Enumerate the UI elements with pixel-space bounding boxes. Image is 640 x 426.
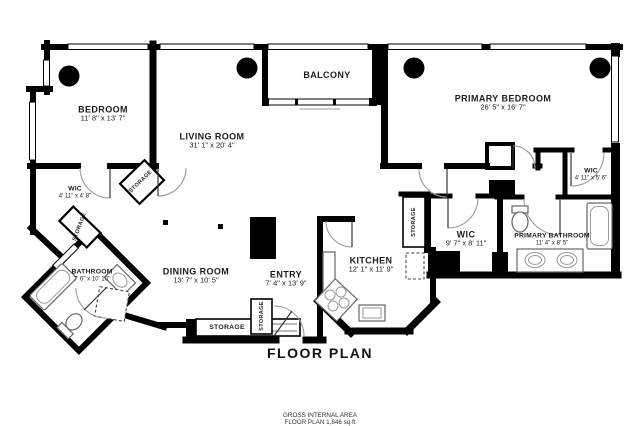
column-2 [237, 58, 258, 79]
balcony-rail-cap-left [263, 98, 269, 106]
room-label-dining-room: DINING ROOM 13' 7" x 10' 5" [163, 267, 229, 286]
wic-right-name: WIC [575, 168, 607, 176]
room-label-primary-bedroom: PRIMARY BEDROOM 26' 5" x 16' 7" [455, 94, 552, 113]
storage-text-3: STORAGE [209, 324, 245, 331]
primary-bathroom-dims: 11' 4" x 8' 5" [514, 240, 590, 247]
window-top-2 [160, 44, 254, 50]
storage-text-4: STORAGE [259, 301, 265, 331]
storage-label-5: STORAGE [411, 207, 417, 237]
wall-living-primary [381, 100, 388, 169]
primary-bedroom-dims: 26' 5" x 16' 7" [455, 104, 552, 113]
window-top-4 [490, 44, 586, 50]
room-label-primary-bathroom: PRIMARY BATHROOM 11' 4" x 8' 5" [514, 233, 590, 248]
refrigerator [406, 253, 424, 279]
room-label-wic-left: WIC 4' 11" x 4' 8" [59, 186, 91, 201]
wall-chunk-2 [492, 252, 508, 276]
bathroom-dims: 7' 6" x 10' 10" [71, 276, 112, 283]
window-right [612, 56, 619, 142]
room-label-bathroom: BATHROOM 7' 6" x 10' 10" [71, 269, 112, 284]
wall-primary-south-jog [535, 150, 566, 168]
room-label-balcony: BALCONY [303, 70, 350, 80]
column-1 [59, 66, 80, 87]
wall-chunk-3 [428, 251, 460, 276]
footer-area-note: GROSS INTERNAL AREA FLOOR PLAN 1,846 sq … [283, 412, 357, 426]
window-top-balcony [268, 44, 368, 50]
balcony-rail-mullion-1 [295, 99, 298, 105]
balcony-name: BALCONY [303, 70, 350, 80]
storage-label-4: STORAGE [259, 301, 265, 331]
page-title: FLOOR PLAN [267, 345, 373, 361]
balcony-rail-mullion-2 [333, 99, 336, 105]
floor-plan-drawing [0, 0, 640, 426]
window-top-3 [388, 44, 482, 50]
room-label-living-room: LIVING ROOM 31' 1" x 20' 4" [180, 132, 245, 151]
room-label-wic-middle: WIC 9' 7" x 8' 11" [446, 230, 487, 249]
primary-closet [487, 144, 513, 168]
shower [95, 287, 130, 322]
wall-balcony-right [372, 44, 388, 105]
footer-line-2: FLOOR PLAN 1,846 sq ft [283, 419, 357, 426]
wic-left-name: WIC [59, 186, 91, 194]
room-label-entry: ENTRY 7' 4" x 13' 9" [265, 270, 306, 289]
wic-right-dims: 4' 11" x 5' 6" [575, 175, 607, 182]
bathroom-window [53, 244, 78, 269]
room-label-wic-right: WIC 4' 11" x 5' 6" [575, 168, 607, 183]
balcony-rail-cap-right [369, 98, 377, 106]
wic-middle-dims: 9' 7" x 8' 11" [446, 240, 487, 249]
column-4 [590, 58, 611, 79]
room-label-bedroom: BEDROOM 11' 8" x 13' 7" [78, 105, 128, 124]
service-shaft-block [250, 217, 276, 259]
primary-bathroom-name: PRIMARY BATHROOM [514, 233, 590, 241]
wall-tick-1 [163, 220, 168, 225]
window-top-1 [68, 44, 148, 50]
living-room-dims: 31' 1" x 20' 4" [180, 142, 245, 151]
balcony-rail [267, 99, 373, 105]
wic-left-dims: 4' 11" x 4' 8" [59, 193, 91, 200]
dining-room-dims: 13' 7" x 10' 5" [163, 277, 229, 286]
wall-tick-2 [218, 224, 223, 229]
bedroom-dims: 11' 8" x 13' 7" [78, 115, 128, 124]
room-label-kitchen: KITCHEN 12' 1" x 11' 9" [349, 256, 394, 275]
storage-label-3: STORAGE [209, 324, 245, 332]
column-3 [404, 58, 425, 79]
storage-text-5: STORAGE [411, 207, 417, 237]
kitchen-dims: 12' 1" x 11' 9" [349, 266, 394, 275]
wall-entry-kitchen [317, 222, 323, 342]
floor-plan-page: BEDROOM 11' 8" x 13' 7" LIVING ROOM 31' … [0, 0, 640, 426]
window-left-2 [30, 102, 36, 160]
window-left-1 [44, 60, 50, 86]
entry-dims: 7' 4" x 13' 9" [265, 280, 306, 289]
primary-toilet [512, 212, 528, 232]
wall-corner-ne [611, 43, 620, 57]
footer-line-1: GROSS INTERNAL AREA [283, 412, 357, 419]
bathroom-name: BATHROOM [71, 269, 112, 277]
wall-wic-bath-diagonal [31, 228, 64, 259]
